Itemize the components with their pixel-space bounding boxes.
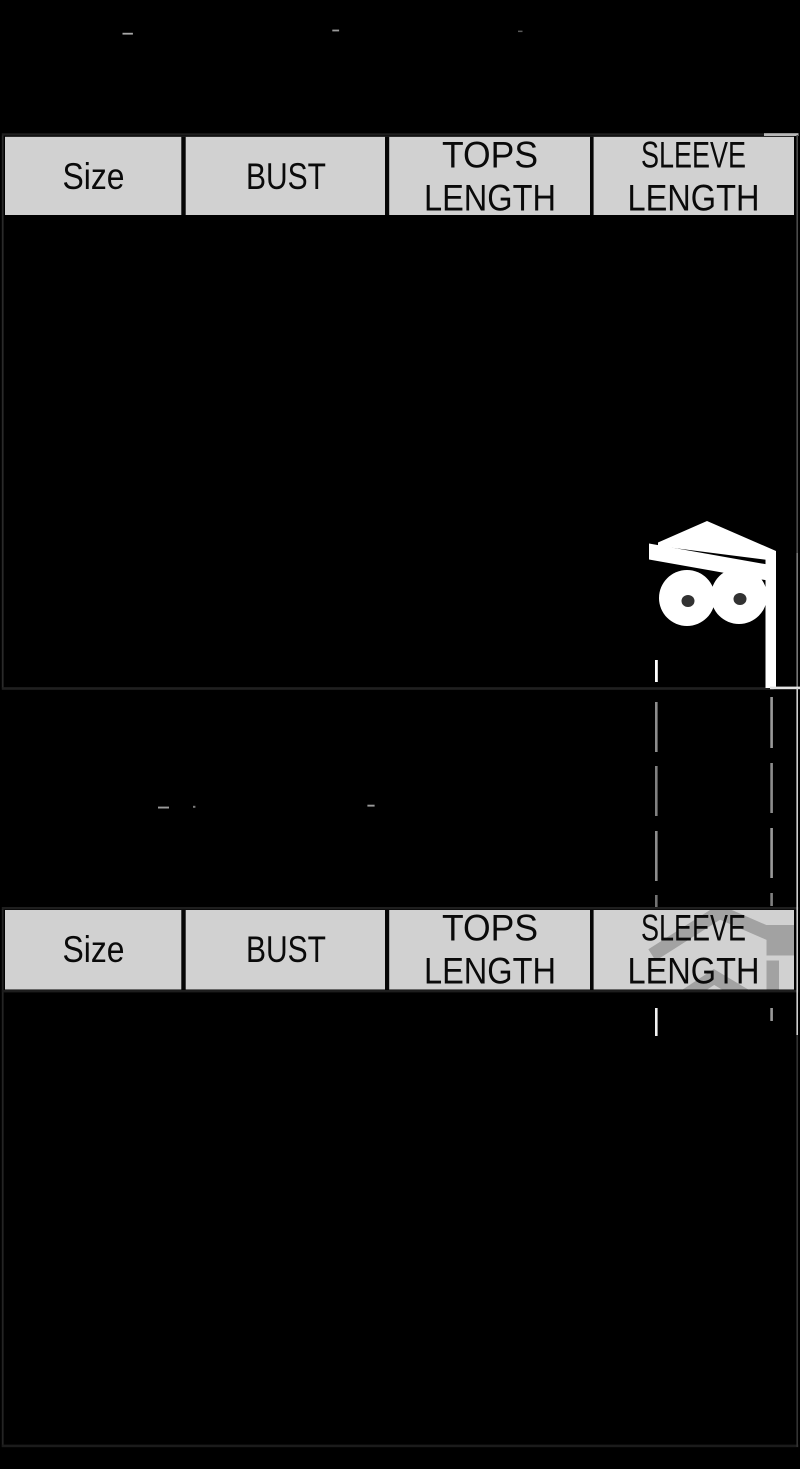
svg-text:LENGTH: LENGTH — [424, 178, 556, 219]
svg-text:LENGTH: LENGTH — [628, 951, 760, 992]
svg-text:TOPS: TOPS — [442, 908, 538, 949]
svg-text:LENGTH: LENGTH — [628, 178, 760, 219]
svg-text:SLEEVE: SLEEVE — [641, 135, 746, 176]
svg-text:Size: Size — [63, 929, 125, 970]
svg-text:Size: Size — [63, 156, 125, 197]
svg-text:TOPS: TOPS — [442, 135, 538, 176]
svg-text:LENGTH: LENGTH — [424, 951, 556, 992]
svg-text:BUST: BUST — [246, 156, 326, 197]
svg-text:BUST: BUST — [246, 929, 326, 970]
svg-text:SLEEVE: SLEEVE — [641, 908, 746, 949]
